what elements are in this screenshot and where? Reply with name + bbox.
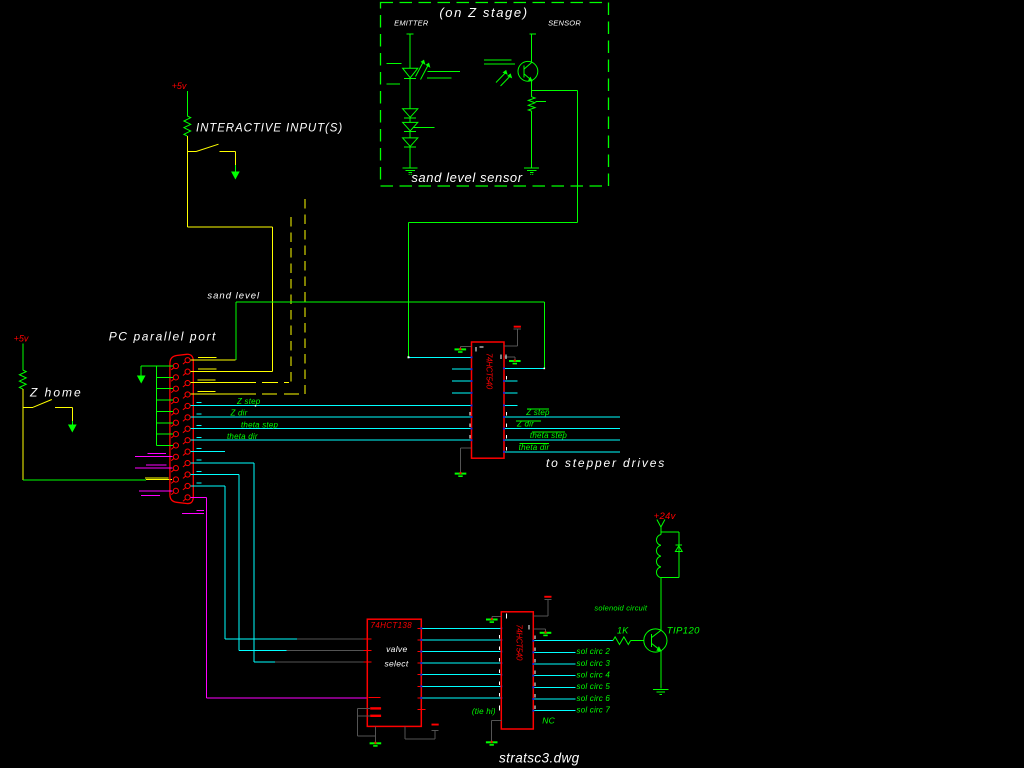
svg-text:stratsc3.dwg: stratsc3.dwg [499, 751, 580, 766]
svg-text:sol circ 3: sol circ 3 [577, 659, 611, 668]
svg-text:theta dir: theta dir [227, 432, 258, 441]
svg-text:(tie hi): (tie hi) [472, 707, 496, 716]
svg-text:NC: NC [542, 715, 555, 725]
svg-text:sand level sensor: sand level sensor [411, 170, 522, 185]
svg-text:SENSOR: SENSOR [548, 18, 581, 27]
svg-text:74HCT138: 74HCT138 [371, 621, 413, 630]
svg-text:+5v: +5v [172, 81, 187, 91]
svg-text:EMITTER: EMITTER [394, 18, 429, 27]
svg-text:Z dir: Z dir [230, 409, 248, 418]
svg-text:sol circ 7: sol circ 7 [577, 705, 611, 714]
svg-text:74HCT540: 74HCT540 [485, 353, 494, 390]
svg-text:sol circ 4: sol circ 4 [577, 670, 611, 679]
svg-text:sand level: sand level [207, 291, 260, 302]
svg-text:theta step: theta step [241, 420, 278, 429]
svg-text:+5v: +5v [14, 334, 29, 344]
svg-text:sol circ 5: sol circ 5 [577, 682, 611, 691]
svg-text:1K: 1K [617, 626, 629, 636]
svg-text:Z step: Z step [525, 408, 550, 417]
svg-text:valve: valve [386, 644, 407, 654]
svg-text:solenoid circuit: solenoid circuit [594, 603, 648, 612]
svg-text:Z home: Z home [29, 386, 83, 400]
svg-text:74HCT540: 74HCT540 [515, 624, 524, 661]
svg-text:to stepper drives: to stepper drives [546, 456, 666, 470]
svg-text:sol circ 2: sol circ 2 [577, 647, 611, 656]
svg-text:PC parallel port: PC parallel port [109, 329, 217, 343]
svg-text:sol circ 6: sol circ 6 [577, 694, 611, 703]
svg-text:select: select [384, 659, 408, 669]
svg-text:(on Z stage): (on Z stage) [439, 5, 528, 20]
svg-text:TIP120: TIP120 [667, 625, 700, 636]
svg-text:INTERACTIVE INPUT(S): INTERACTIVE INPUT(S) [196, 123, 343, 135]
svg-text:Z step: Z step [236, 397, 261, 406]
